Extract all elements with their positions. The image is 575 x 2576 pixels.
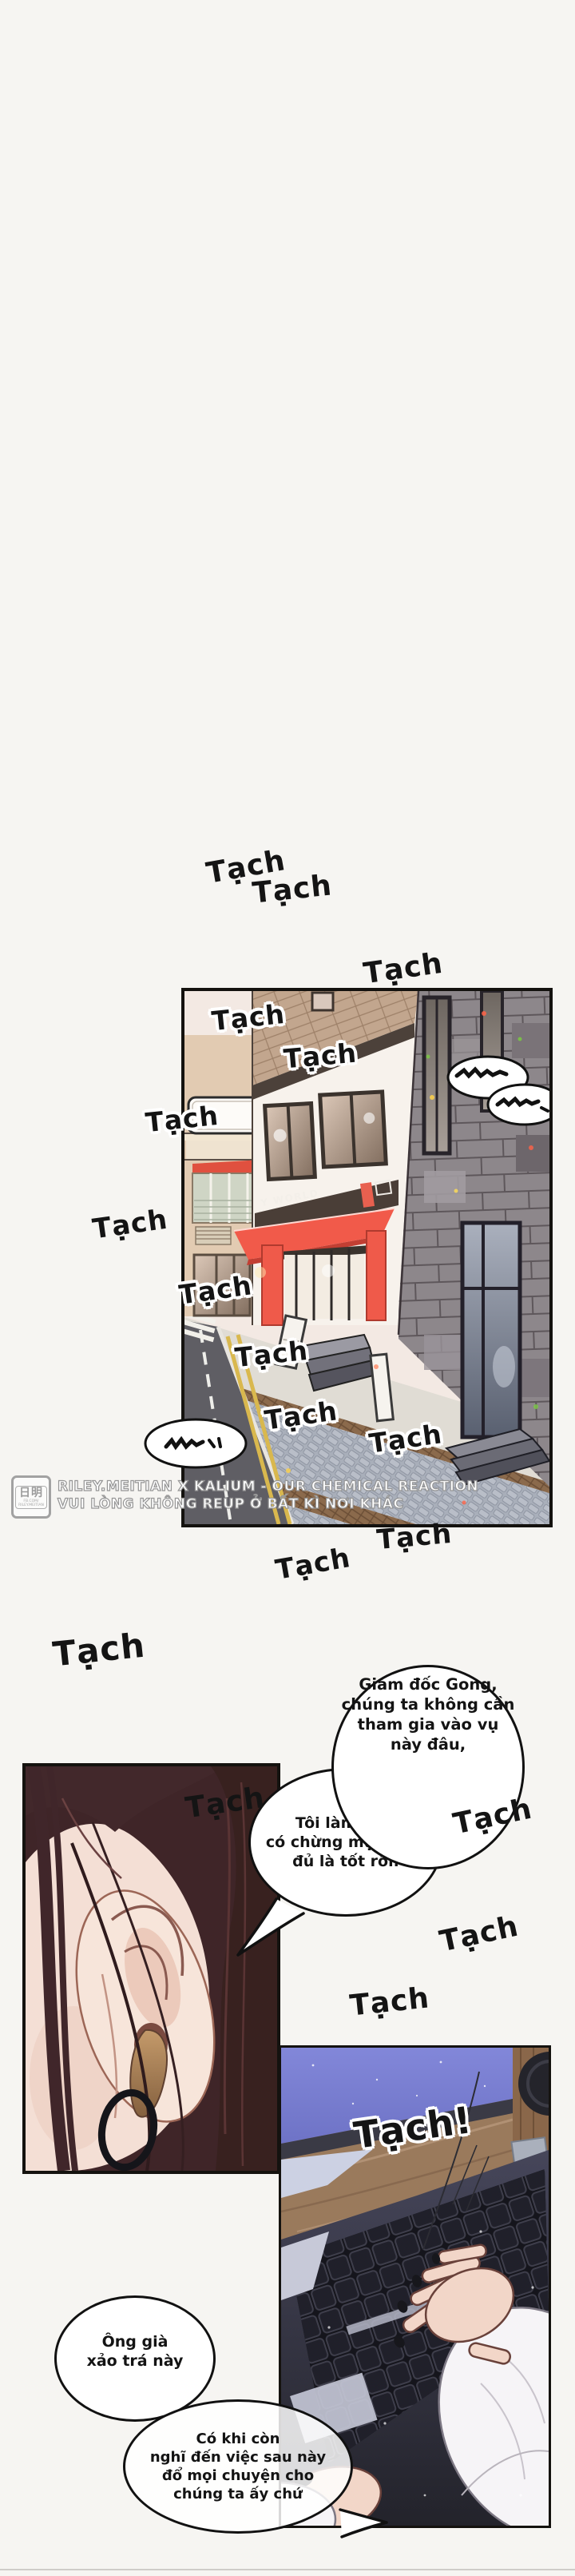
sfx-tach: Tạch: [348, 1981, 431, 2022]
panel-ear-closeup: [22, 1763, 280, 2174]
thought-bubble-grumble1: Ông già xảo trá này: [54, 2295, 216, 2422]
page-divider-line: [0, 2569, 575, 2570]
scribble-bubble: [142, 1416, 250, 1471]
sfx-tach: Tạch: [362, 947, 446, 990]
sfx-tach: Tạch: [204, 844, 287, 890]
speech-bubble-reply-tail: [230, 1896, 314, 1961]
credits-line1: RILEY.MEITIAN X KALIUM - OUR CHEMICAL RE…: [57, 1478, 478, 1495]
sfx-tach: Tạch: [273, 1542, 353, 1587]
speech-bubble-director: Giám đốc Gong, chúng ta không cần tham g…: [331, 1665, 525, 1869]
sfx-tach: Tạch: [251, 869, 334, 910]
comic-page: Y WORLD RILEY.MEITIAN X KALIUM - OUR CHE…: [0, 0, 575, 2576]
credits-line2: VUI LÒNG KHÔNG REUP Ở BẤT KÌ NƠI KHÁC: [57, 1495, 478, 1513]
ear-closeup-art: [26, 1766, 277, 2171]
credits: RILEY.MEITIAN X KALIUM - OUR CHEMICAL RE…: [57, 1478, 478, 1513]
sfx-tach: Tạch: [51, 1626, 147, 1674]
sfx-tach: Tạch: [90, 1204, 169, 1246]
translator-stamp: 日明 FB.COM/ RILEY.MEITIAN: [11, 1475, 51, 1519]
thought-bubble-grumble2-text: Có khi còn nghĩ đến việc sau này đổ mọi …: [150, 2430, 326, 2503]
thought-bubble-grumble2: Có khi còn nghĩ đến việc sau này đổ mọi …: [123, 2399, 353, 2534]
thought-bubble-grumble1-text: Ông già xảo trá này: [87, 2332, 184, 2371]
sfx-tach: Tạch: [437, 1910, 521, 1959]
thought-bubble-grumble2-tail: [335, 2502, 393, 2546]
stamp-glyphs: 日明: [18, 1487, 44, 1499]
speech-bubble-director-text: Giám đốc Gong, chúng ta không cần tham g…: [342, 1675, 515, 1755]
stamp-sub2: RILEY.MEITIAN: [18, 1503, 44, 1507]
